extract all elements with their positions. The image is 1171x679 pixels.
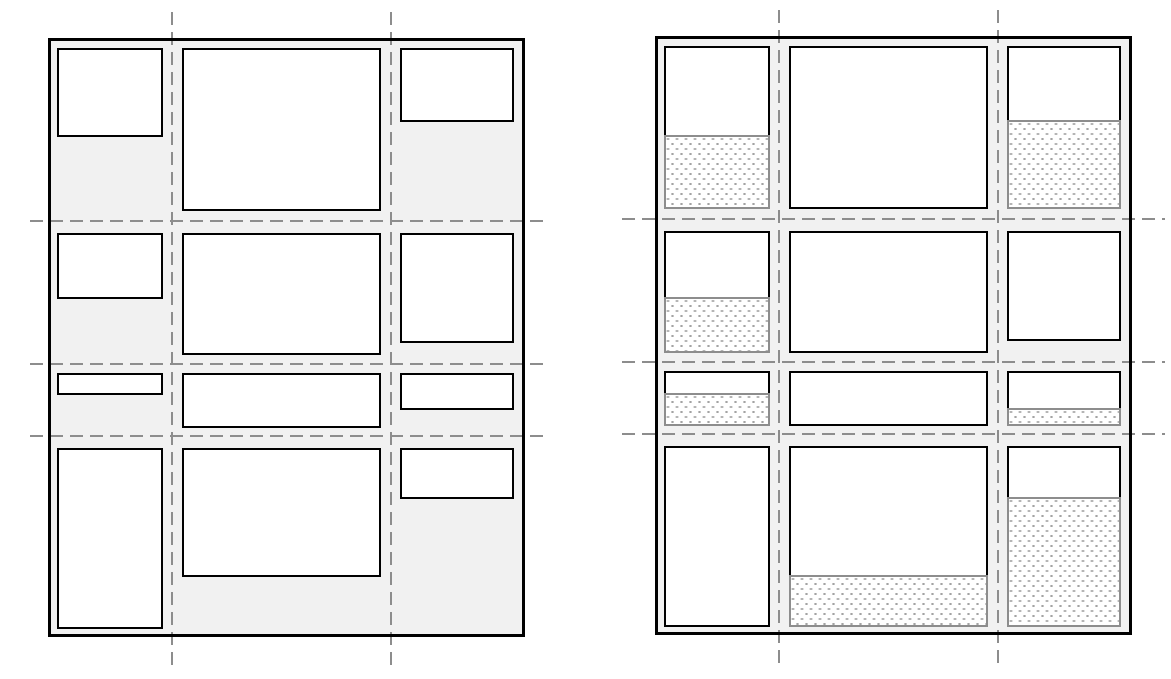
grid-item	[57, 48, 163, 137]
grid-line-horizontal-1	[30, 220, 543, 223]
grid-line-vertical-2	[390, 12, 393, 670]
grid-line-vertical-1	[778, 10, 781, 668]
grid-item	[400, 233, 514, 343]
grid-item-stretch-area	[789, 575, 988, 627]
grid-item	[400, 48, 514, 122]
grid-item	[1007, 371, 1121, 408]
grid-item	[400, 373, 514, 410]
grid-diagram-stretched-items	[655, 36, 1132, 635]
grid-item	[1007, 231, 1121, 341]
grid-item	[182, 373, 381, 428]
grid-item	[664, 231, 770, 297]
grid-line-horizontal-2	[30, 363, 543, 366]
grid-item-stretch-area	[664, 135, 770, 209]
grid-item-stretch-area	[664, 297, 770, 353]
grid-item	[789, 371, 988, 426]
grid-line-horizontal-2	[622, 361, 1165, 364]
grid-item	[182, 448, 381, 577]
grid-item	[57, 373, 163, 395]
grid-item	[182, 48, 381, 211]
grid-line-horizontal-3	[30, 435, 543, 438]
grid-line-vertical-1	[171, 12, 174, 670]
grid-item	[182, 233, 381, 355]
grid-item	[57, 233, 163, 299]
grid-item-stretch-area	[1007, 408, 1121, 426]
grid-item	[1007, 446, 1121, 497]
grid-line-vertical-2	[997, 10, 1000, 668]
grid-item	[789, 46, 988, 209]
grid-item	[57, 448, 163, 629]
grid-item	[789, 446, 988, 575]
grid-line-horizontal-3	[622, 433, 1165, 436]
grid-item	[1007, 46, 1121, 120]
grid-item	[664, 371, 770, 393]
grid-item	[664, 446, 770, 627]
grid-item	[789, 231, 988, 353]
grid-item-stretch-area	[1007, 497, 1121, 627]
grid-item-stretch-area	[664, 393, 770, 426]
grid-item-stretch-area	[1007, 120, 1121, 209]
grid-diagram-natural-sizes	[48, 38, 525, 637]
grid-item	[400, 448, 514, 499]
grid-line-horizontal-1	[622, 218, 1165, 221]
grid-item	[664, 46, 770, 135]
